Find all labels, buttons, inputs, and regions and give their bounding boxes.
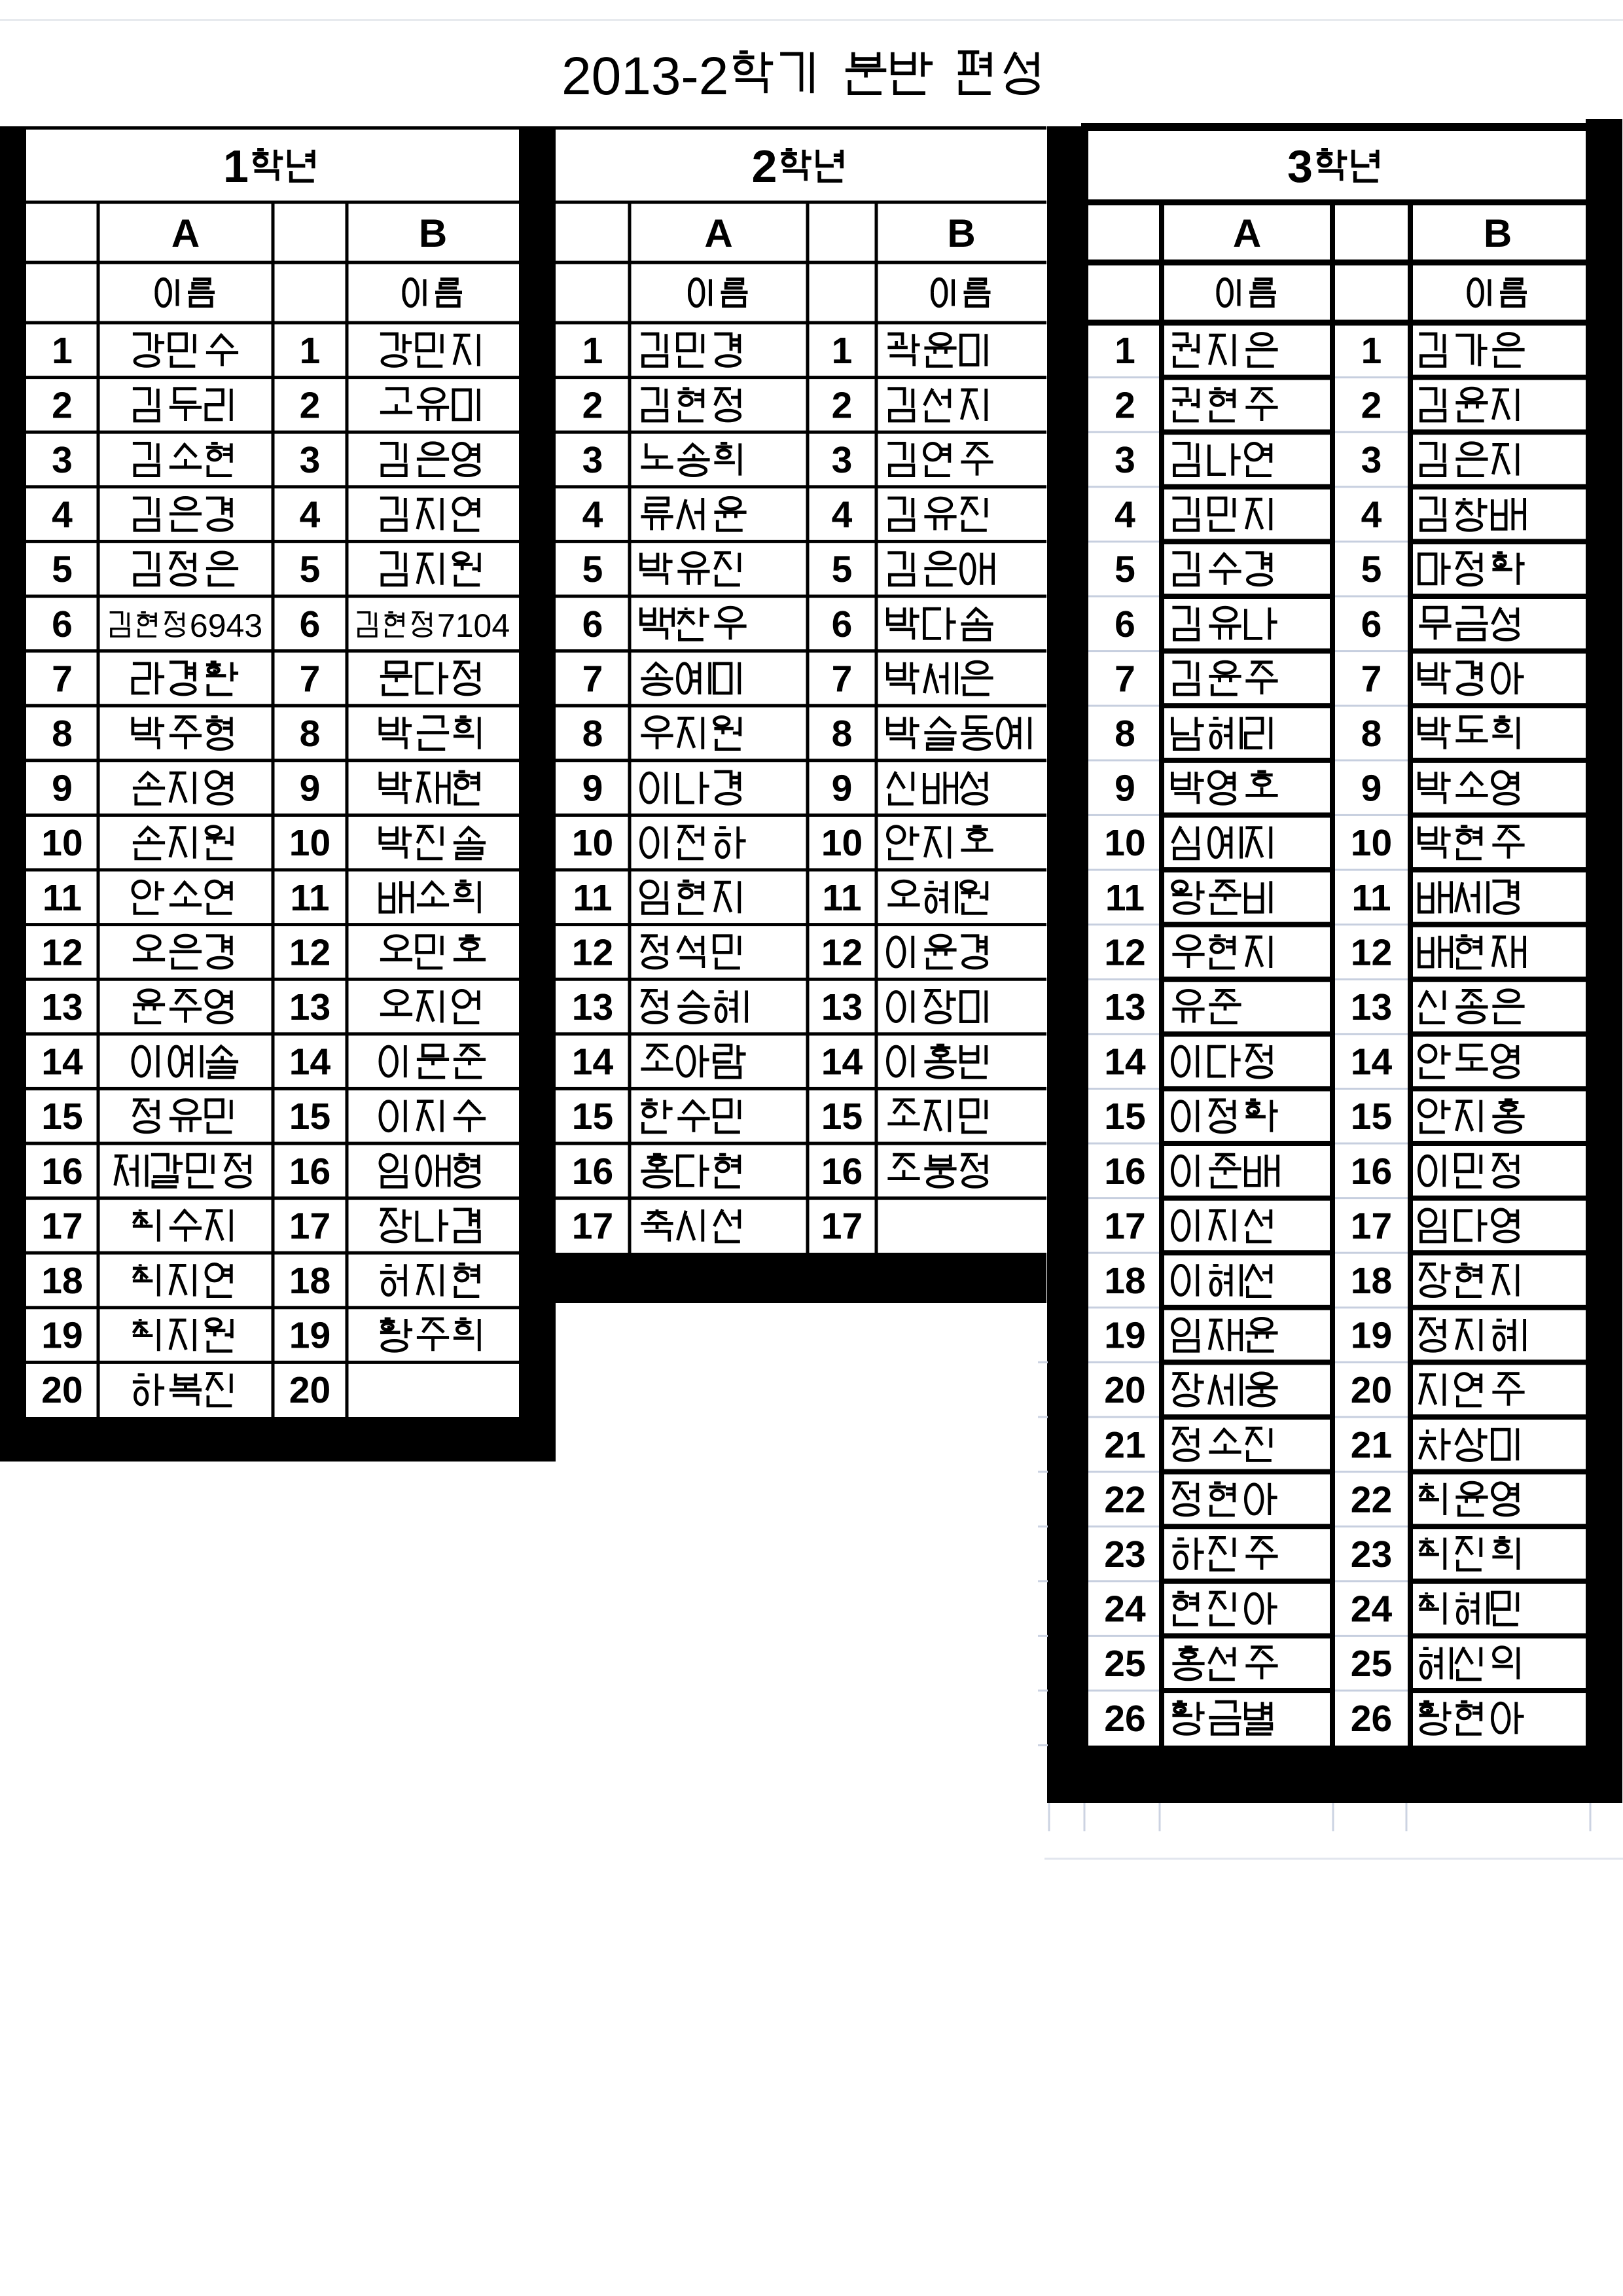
- svg-text:2: 2: [582, 384, 603, 426]
- svg-text:2013-2: 2013-2: [562, 46, 728, 106]
- svg-text:4: 4: [832, 494, 853, 536]
- svg-text:11: 11: [1105, 877, 1145, 919]
- svg-text:15: 15: [289, 1096, 330, 1138]
- svg-text:18: 18: [41, 1260, 82, 1302]
- svg-text:9: 9: [832, 768, 853, 810]
- svg-text:1: 1: [223, 141, 249, 192]
- svg-text:3: 3: [1287, 141, 1313, 192]
- svg-text:17: 17: [821, 1205, 863, 1247]
- svg-text:6943: 6943: [190, 607, 262, 644]
- svg-text:17: 17: [41, 1205, 82, 1247]
- svg-text:14: 14: [821, 1041, 863, 1083]
- svg-text:2: 2: [52, 384, 73, 426]
- svg-text:11: 11: [1351, 877, 1391, 919]
- svg-text:B: B: [419, 211, 447, 255]
- svg-text:19: 19: [1104, 1315, 1145, 1357]
- svg-text:8: 8: [52, 713, 73, 755]
- svg-text:5: 5: [1361, 548, 1382, 590]
- svg-text:8: 8: [1361, 713, 1382, 755]
- svg-text:1: 1: [1115, 330, 1135, 372]
- svg-text:13: 13: [289, 986, 330, 1028]
- svg-text:2: 2: [832, 384, 853, 426]
- svg-text:16: 16: [289, 1151, 330, 1193]
- svg-text:8: 8: [582, 713, 603, 755]
- svg-text:18: 18: [1351, 1260, 1392, 1302]
- svg-text:15: 15: [41, 1096, 82, 1138]
- svg-text:4: 4: [1361, 494, 1382, 536]
- svg-text:20: 20: [289, 1369, 330, 1411]
- svg-text:10: 10: [1351, 822, 1392, 864]
- svg-text:11: 11: [573, 877, 612, 919]
- svg-text:10: 10: [41, 822, 82, 864]
- svg-text:13: 13: [41, 986, 82, 1028]
- svg-text:2: 2: [1361, 384, 1382, 426]
- svg-text:6: 6: [832, 603, 853, 645]
- svg-text:15: 15: [1104, 1096, 1145, 1138]
- svg-text:4: 4: [582, 494, 603, 536]
- svg-text:19: 19: [1351, 1315, 1392, 1357]
- svg-text:15: 15: [1351, 1096, 1392, 1138]
- svg-text:B: B: [947, 211, 975, 255]
- svg-text:17: 17: [1104, 1205, 1145, 1247]
- svg-text:12: 12: [41, 931, 82, 973]
- svg-text:3: 3: [1361, 439, 1382, 481]
- svg-text:12: 12: [1351, 931, 1392, 973]
- svg-text:13: 13: [1104, 986, 1145, 1028]
- svg-text:19: 19: [289, 1315, 330, 1357]
- svg-text:5: 5: [832, 548, 853, 590]
- svg-text:7: 7: [832, 658, 853, 700]
- svg-text:7104: 7104: [437, 607, 510, 644]
- svg-text:7: 7: [582, 658, 603, 700]
- svg-text:A: A: [171, 211, 200, 255]
- svg-text:10: 10: [572, 822, 613, 864]
- svg-text:12: 12: [1104, 931, 1145, 973]
- svg-text:15: 15: [572, 1096, 613, 1138]
- svg-text:5: 5: [300, 548, 321, 590]
- svg-text:9: 9: [1115, 768, 1135, 810]
- svg-text:3: 3: [832, 439, 853, 481]
- svg-text:7: 7: [300, 658, 321, 700]
- svg-text:1: 1: [52, 330, 73, 372]
- svg-text:7: 7: [52, 658, 73, 700]
- svg-text:7: 7: [1115, 658, 1135, 700]
- svg-text:14: 14: [1104, 1041, 1146, 1083]
- svg-text:B: B: [1484, 211, 1512, 255]
- svg-text:A: A: [1233, 211, 1261, 255]
- svg-text:9: 9: [582, 768, 603, 810]
- svg-text:2: 2: [300, 384, 321, 426]
- svg-text:17: 17: [1351, 1205, 1392, 1247]
- svg-text:7: 7: [1361, 658, 1382, 700]
- svg-text:10: 10: [1104, 822, 1145, 864]
- svg-text:19: 19: [41, 1315, 82, 1357]
- svg-text:6: 6: [1361, 603, 1382, 645]
- svg-text:5: 5: [52, 548, 73, 590]
- svg-text:11: 11: [822, 877, 861, 919]
- svg-text:14: 14: [41, 1041, 83, 1083]
- svg-text:4: 4: [300, 494, 321, 536]
- svg-text:10: 10: [821, 822, 863, 864]
- svg-text:1: 1: [832, 330, 853, 372]
- svg-text:16: 16: [821, 1151, 863, 1193]
- svg-text:5: 5: [582, 548, 603, 590]
- svg-text:13: 13: [1351, 986, 1392, 1028]
- svg-text:6: 6: [52, 603, 73, 645]
- svg-text:2: 2: [752, 141, 777, 192]
- svg-text:8: 8: [300, 713, 321, 755]
- svg-text:9: 9: [52, 768, 73, 810]
- svg-text:16: 16: [41, 1151, 82, 1193]
- svg-text:17: 17: [289, 1205, 330, 1247]
- svg-text:2: 2: [1115, 384, 1135, 426]
- svg-text:20: 20: [41, 1369, 82, 1411]
- svg-text:3: 3: [1115, 439, 1135, 481]
- svg-text:12: 12: [289, 931, 330, 973]
- svg-text:3: 3: [582, 439, 603, 481]
- svg-text:9: 9: [300, 768, 321, 810]
- svg-text:16: 16: [1351, 1151, 1392, 1193]
- svg-text:9: 9: [1361, 768, 1382, 810]
- svg-text:4: 4: [52, 494, 73, 536]
- svg-text:12: 12: [572, 931, 613, 973]
- svg-text:14: 14: [1351, 1041, 1393, 1083]
- svg-text:16: 16: [572, 1151, 613, 1193]
- svg-text:11: 11: [290, 877, 329, 919]
- svg-text:4: 4: [1115, 494, 1135, 536]
- svg-text:1: 1: [300, 330, 321, 372]
- svg-text:18: 18: [1104, 1260, 1145, 1302]
- svg-text:13: 13: [572, 986, 613, 1028]
- svg-text:11: 11: [43, 877, 82, 919]
- svg-text:13: 13: [821, 986, 863, 1028]
- svg-text:16: 16: [1104, 1151, 1145, 1193]
- svg-text:10: 10: [289, 822, 330, 864]
- svg-text:18: 18: [289, 1260, 330, 1302]
- svg-text:3: 3: [300, 439, 321, 481]
- svg-text:6: 6: [300, 603, 321, 645]
- svg-text:14: 14: [289, 1041, 331, 1083]
- svg-text:A: A: [704, 211, 732, 255]
- svg-text:14: 14: [572, 1041, 614, 1083]
- svg-text:1: 1: [582, 330, 603, 372]
- svg-text:8: 8: [1115, 713, 1135, 755]
- svg-text:17: 17: [572, 1205, 613, 1247]
- svg-text:8: 8: [832, 713, 853, 755]
- svg-text:12: 12: [821, 931, 863, 973]
- svg-text:3: 3: [52, 439, 73, 481]
- svg-text:6: 6: [582, 603, 603, 645]
- svg-text:1: 1: [1361, 330, 1382, 372]
- svg-text:6: 6: [1115, 603, 1135, 645]
- svg-text:15: 15: [821, 1096, 863, 1138]
- svg-text:5: 5: [1115, 548, 1135, 590]
